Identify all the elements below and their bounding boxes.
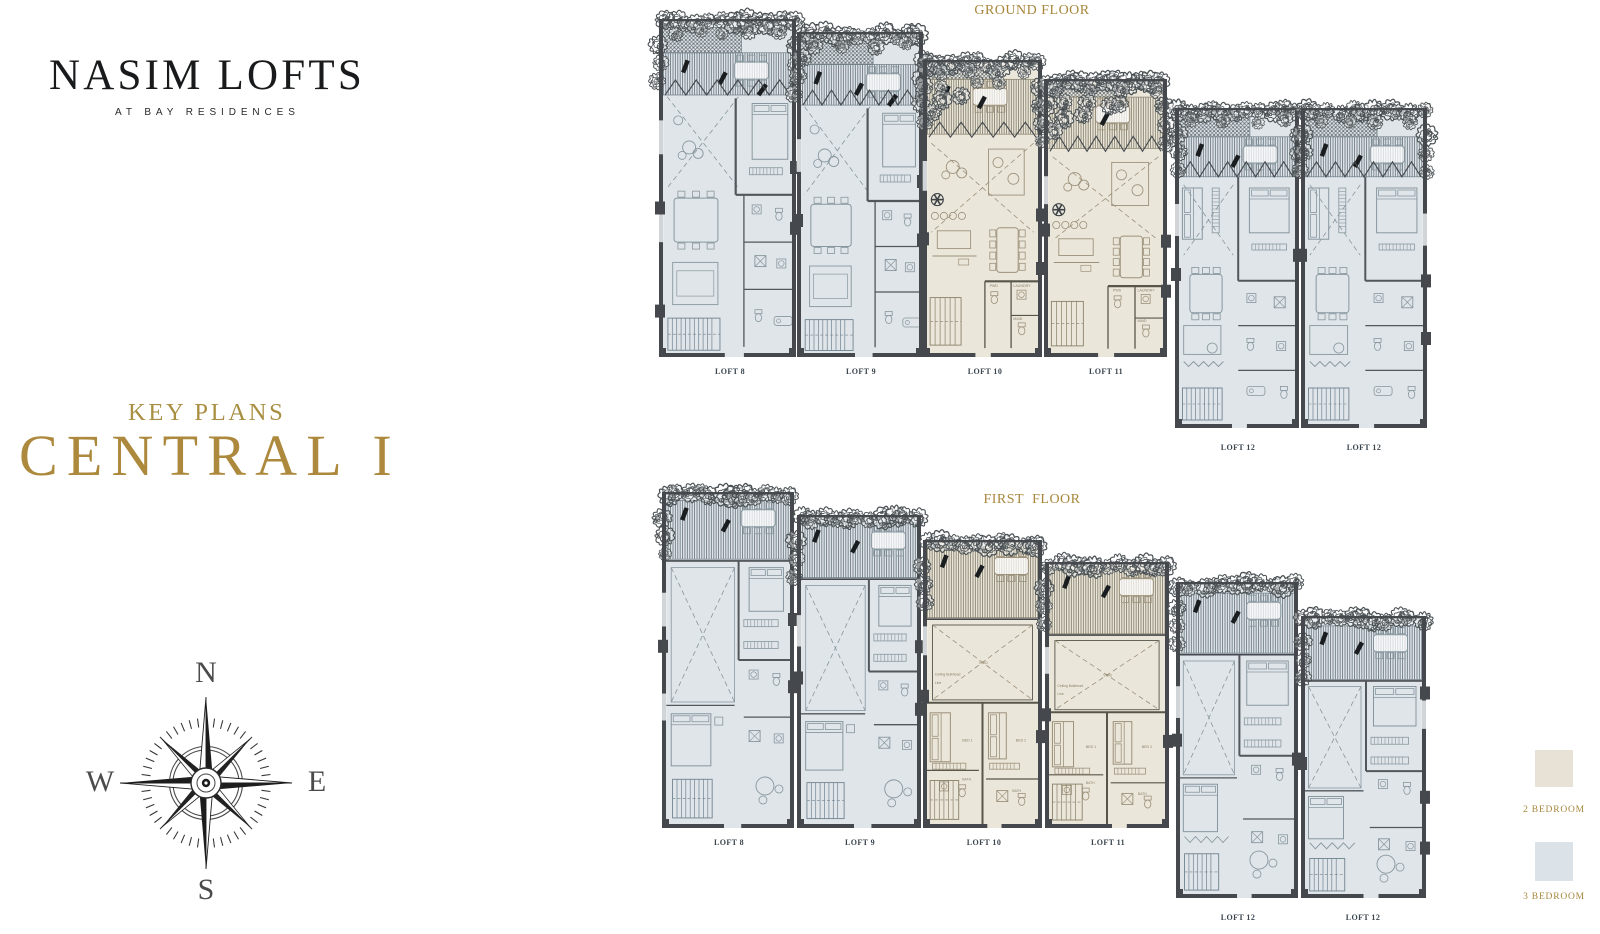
svg-text:BED 2: BED 2: [1016, 739, 1026, 743]
svg-text:PWD: PWD: [1113, 289, 1122, 293]
svg-text:BATH: BATH: [1138, 792, 1147, 796]
svg-text:PWD: PWD: [990, 284, 999, 288]
svg-text:Line: Line: [1057, 692, 1064, 696]
svg-text:MAID: MAID: [1138, 319, 1147, 323]
svg-text:BATH: BATH: [1012, 789, 1021, 793]
svg-text:MAID: MAID: [1013, 317, 1022, 321]
svg-text:Ceiling Bulkhead: Ceiling Bulkhead: [1057, 684, 1083, 688]
svg-text:VOID: VOID: [1103, 673, 1112, 677]
svg-text:BATH: BATH: [1086, 781, 1095, 785]
svg-text:VOID: VOID: [979, 661, 988, 665]
svg-text:LAUNDRY: LAUNDRY: [1013, 284, 1031, 288]
svg-text:Ceiling Bulkhead: Ceiling Bulkhead: [935, 672, 961, 676]
svg-text:LAUNDRY: LAUNDRY: [1138, 289, 1156, 293]
svg-text:BATH: BATH: [962, 778, 971, 782]
svg-text:BED 1: BED 1: [962, 739, 972, 743]
svg-text:Line: Line: [935, 681, 942, 685]
svg-text:BED 2: BED 2: [1142, 745, 1152, 749]
svg-text:BED 1: BED 1: [1086, 745, 1096, 749]
